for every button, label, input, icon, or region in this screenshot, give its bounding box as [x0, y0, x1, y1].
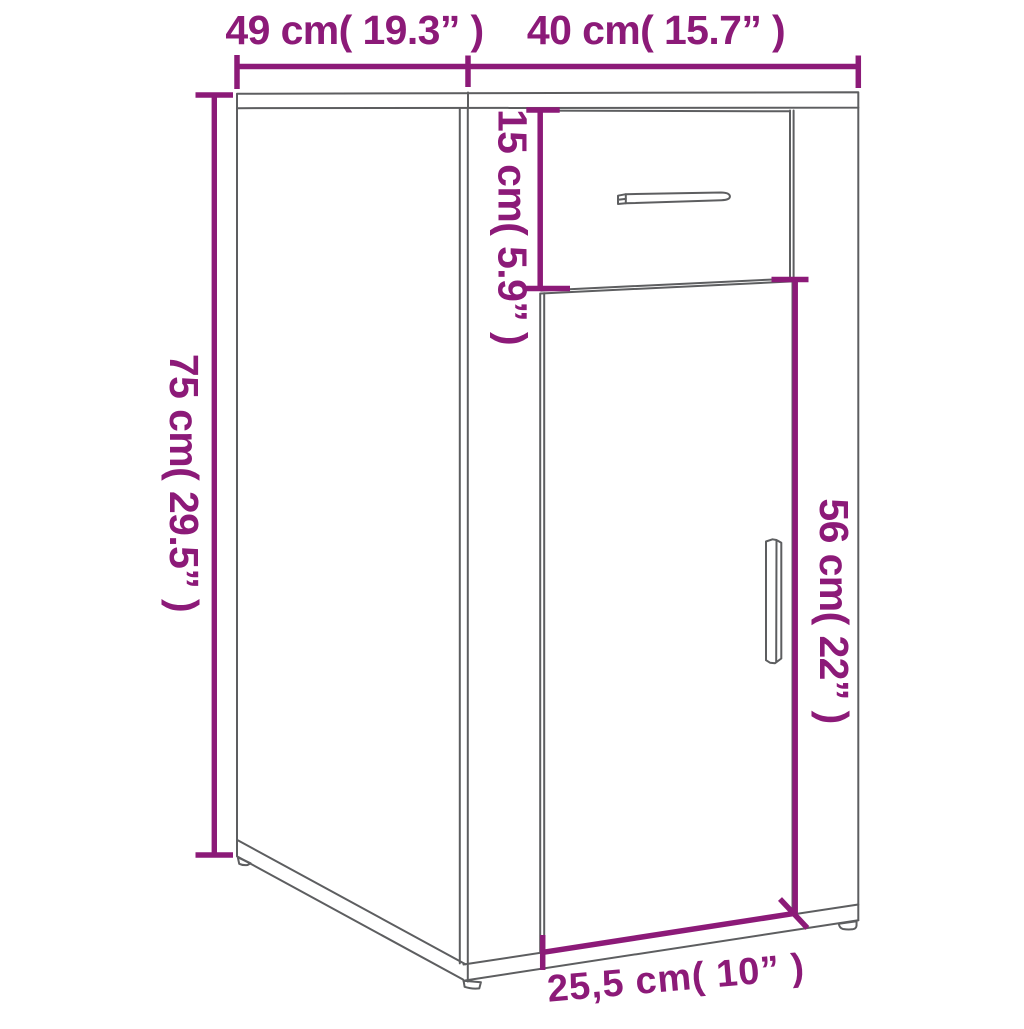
svg-text:15 cm( 5.9” ): 15 cm( 5.9” )	[490, 109, 536, 345]
svg-text:75 cm( 29.5” ): 75 cm( 29.5” )	[161, 354, 207, 612]
svg-text:40 cm( 15.7” ): 40 cm( 15.7” )	[527, 7, 785, 53]
svg-text:49 cm( 19.3” ): 49 cm( 19.3” )	[225, 7, 483, 53]
svg-text:56 cm( 22” ): 56 cm( 22” )	[811, 498, 857, 723]
